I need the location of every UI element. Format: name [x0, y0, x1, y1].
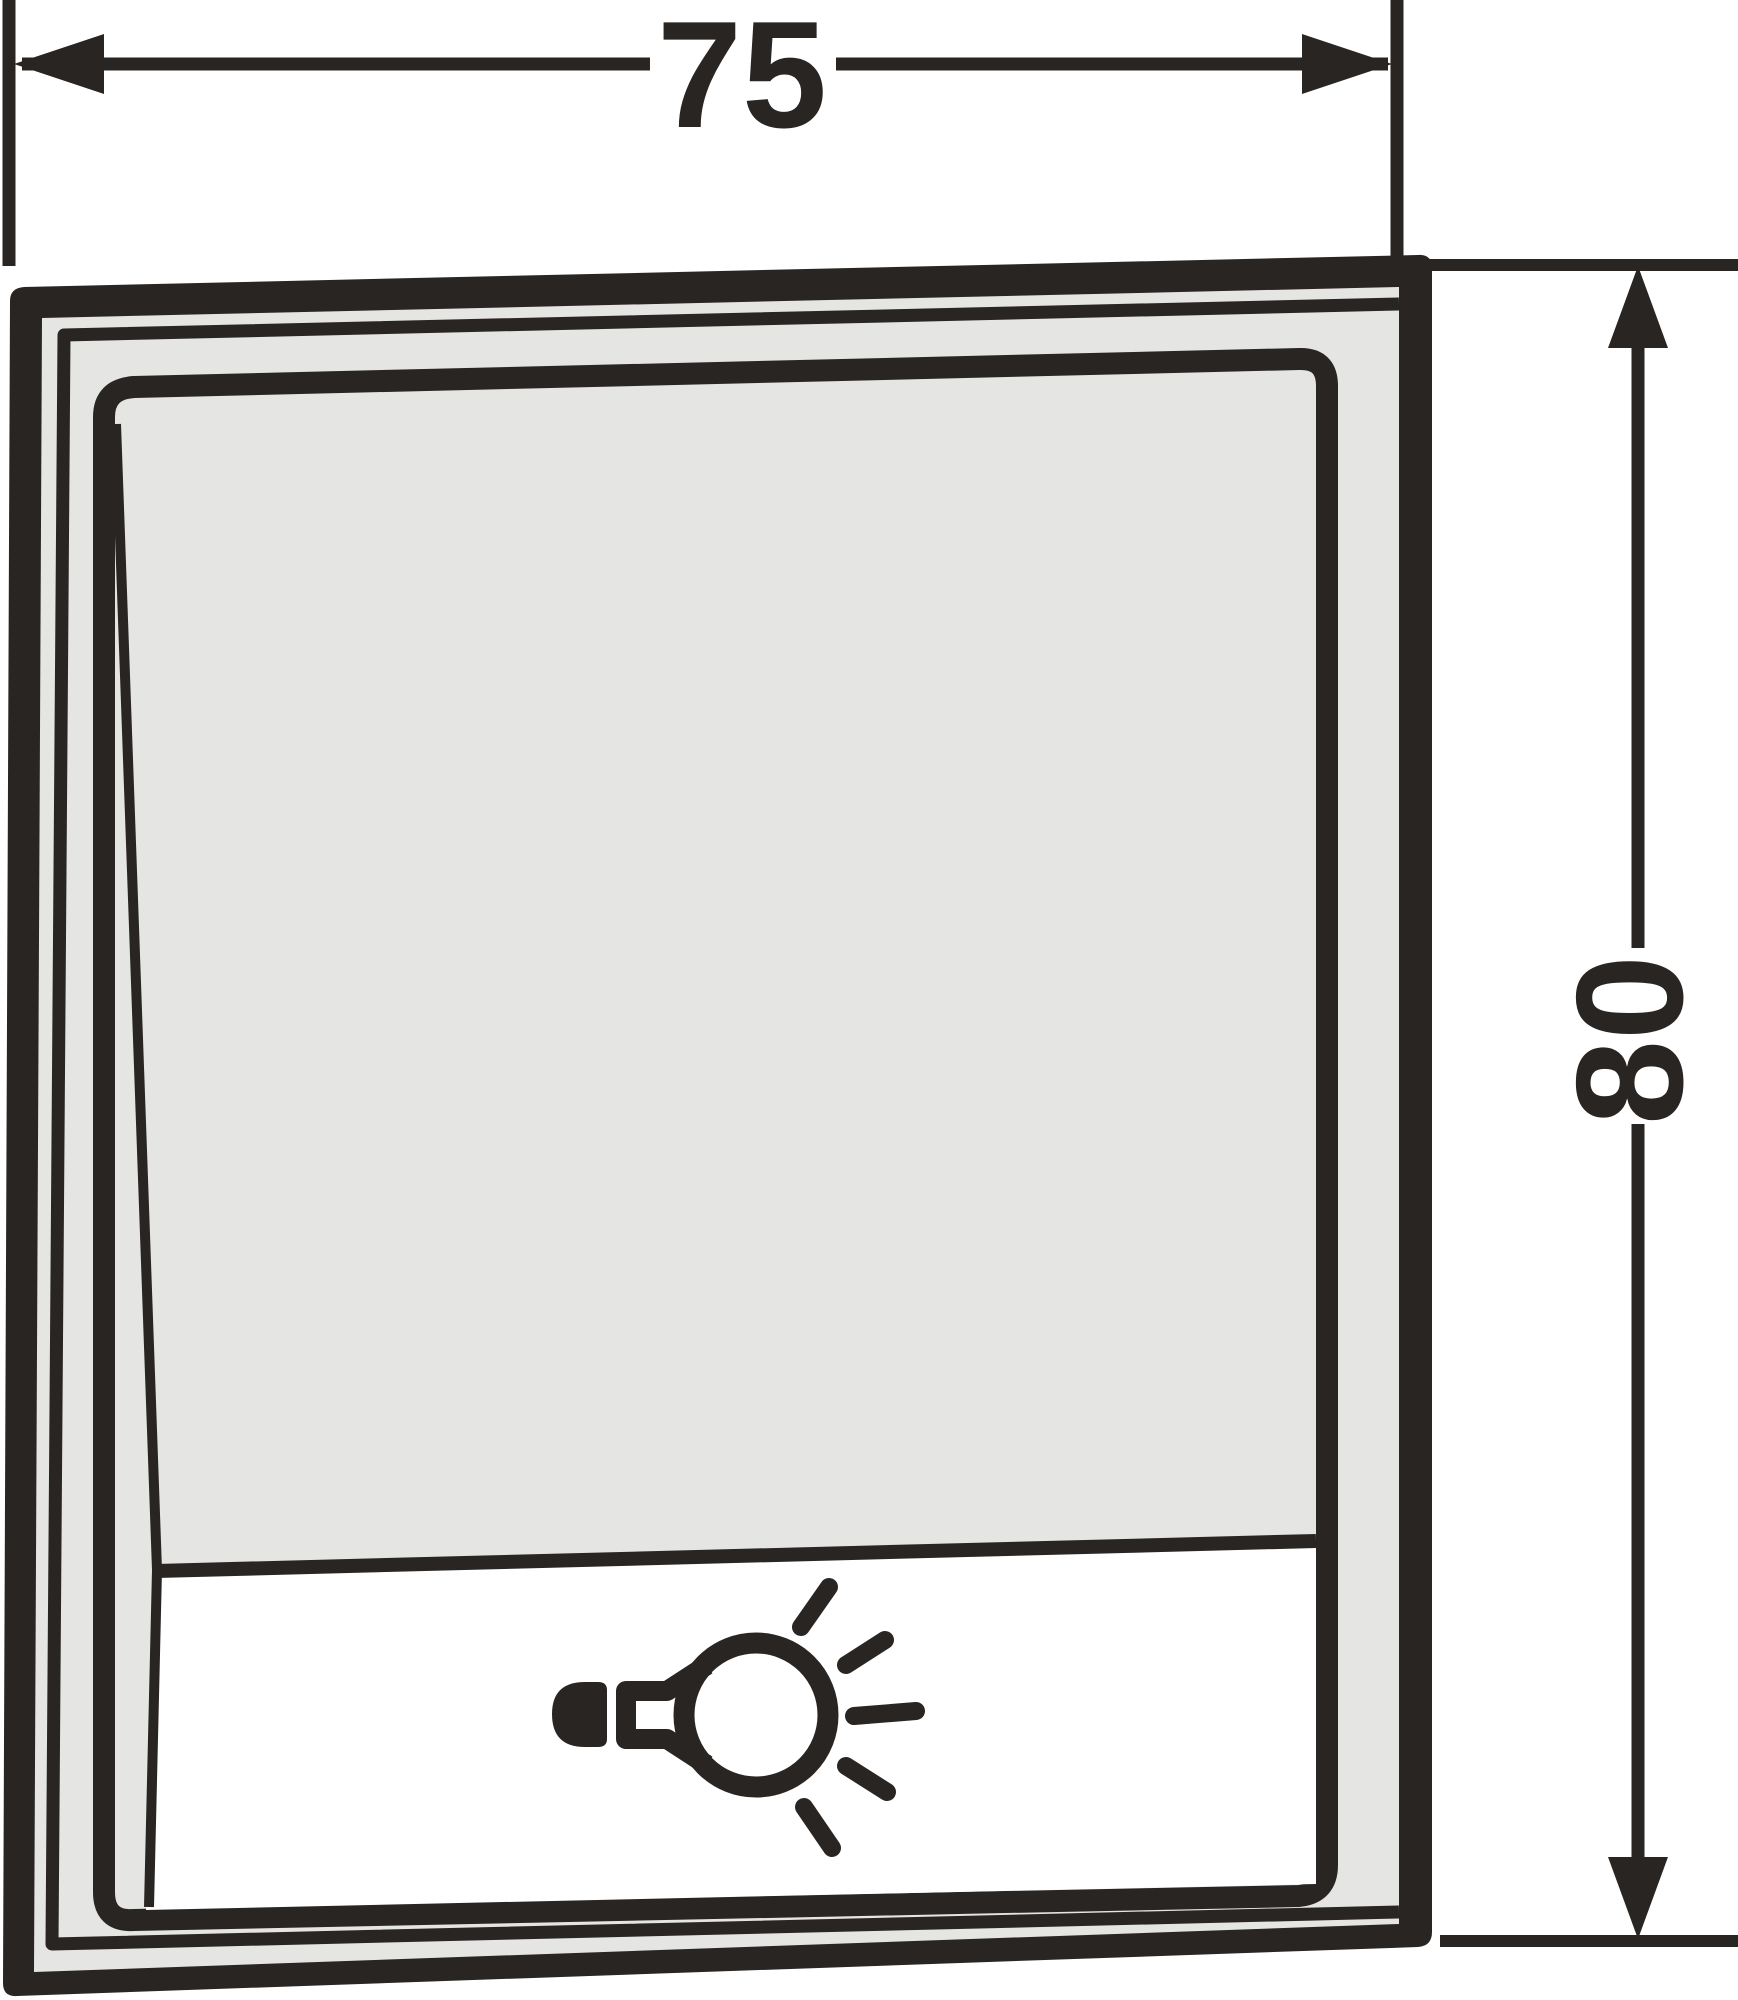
- arrow-right-icon: [1302, 34, 1392, 94]
- height-dim-value: 80: [1545, 955, 1715, 1125]
- arrow-left-icon: [14, 34, 104, 94]
- light-icon-ray-right: [854, 1711, 916, 1716]
- switch-plate: [3, 255, 1432, 1996]
- technical-drawing: 75 80: [0, 0, 1738, 2000]
- arrow-down-icon: [1608, 1857, 1668, 1939]
- drawing-svg: 75 80: [0, 0, 1738, 2000]
- width-dim-value: 75: [657, 0, 827, 160]
- width-dimension: 75: [9, 0, 1397, 266]
- label-strip: [146, 1540, 1316, 1910]
- light-icon-base: [552, 1682, 607, 1747]
- arrow-up-icon: [1608, 266, 1668, 348]
- height-dimension: 80: [1412, 265, 1738, 1941]
